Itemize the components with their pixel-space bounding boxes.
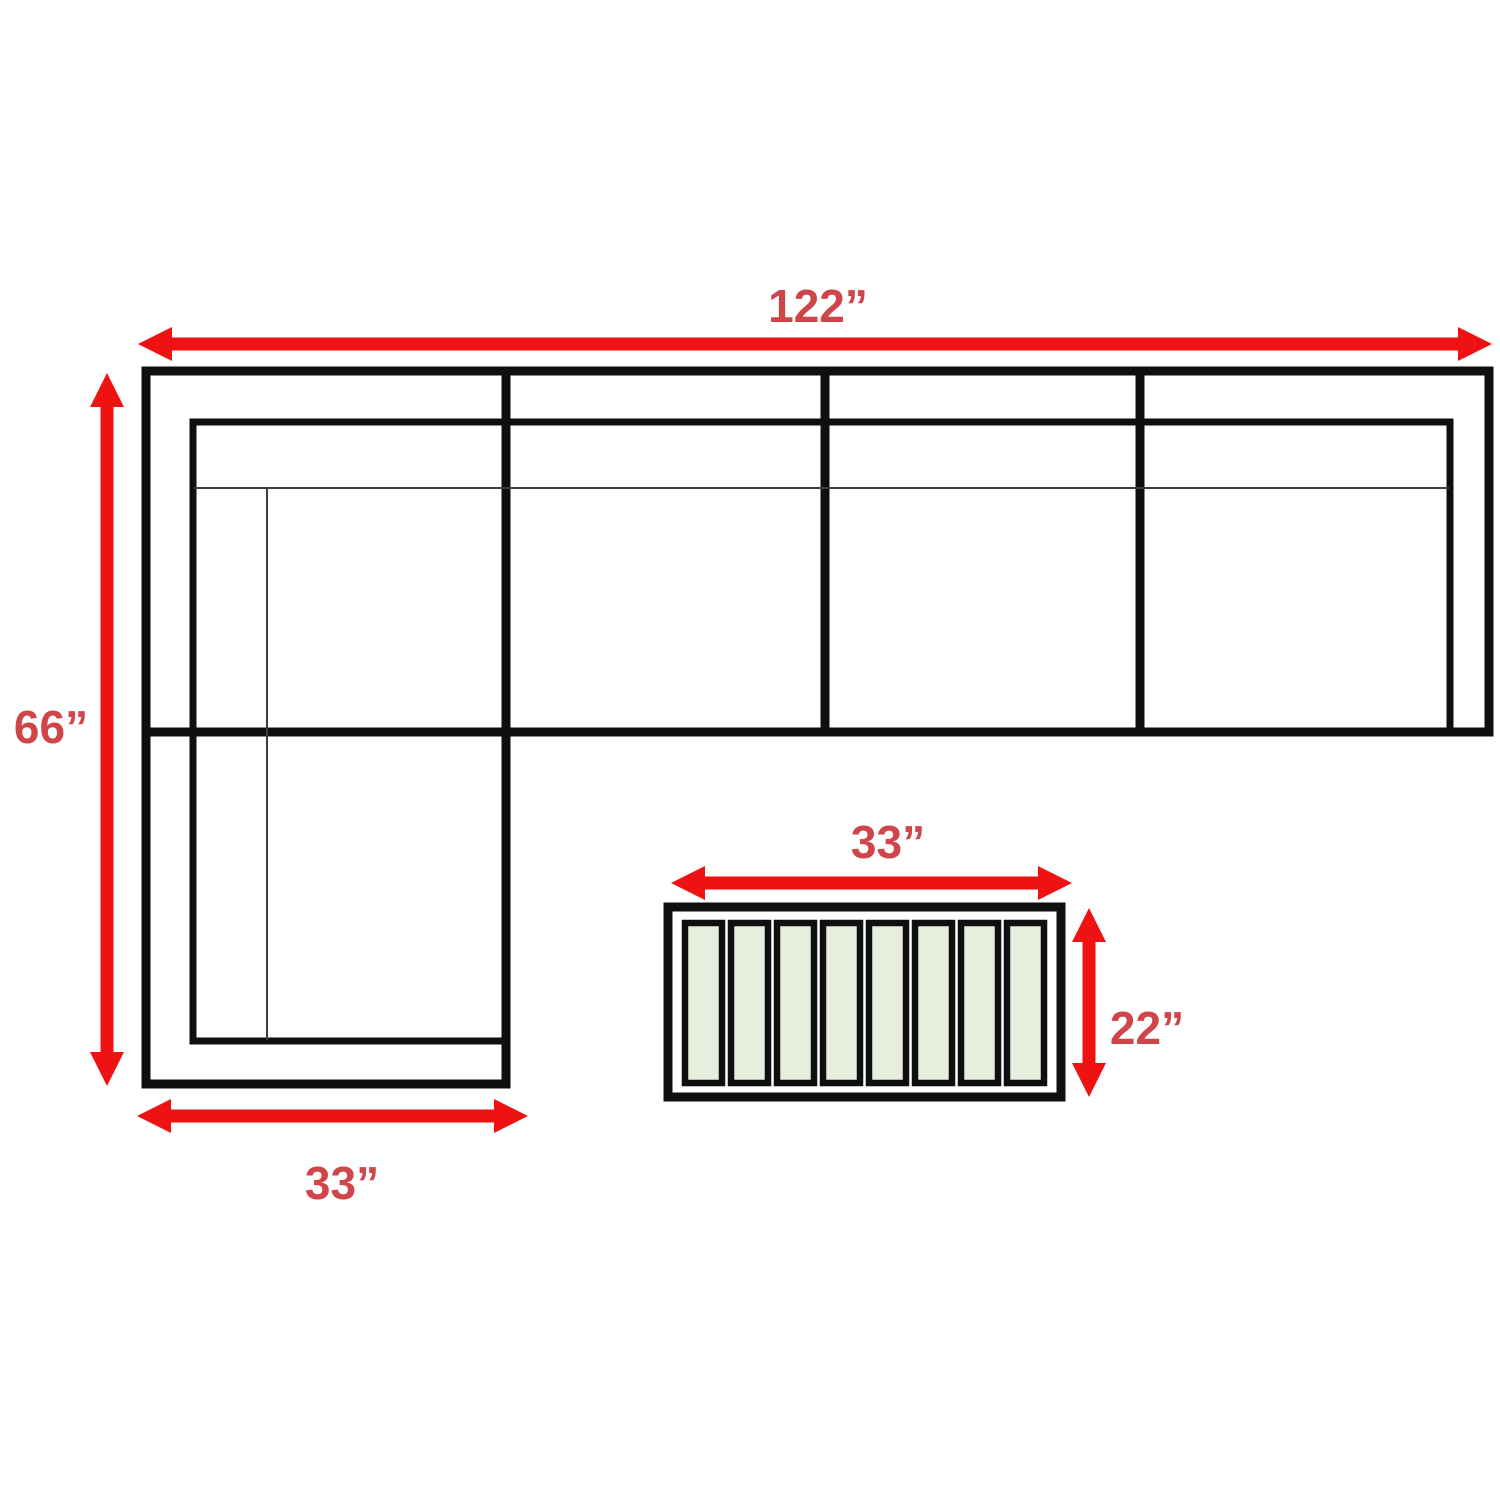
sofa-width-arrow-left-head [138, 327, 172, 361]
table-slat [731, 923, 768, 1083]
table-slat [777, 923, 814, 1083]
chaise-width-arrow-right-head [494, 1099, 528, 1133]
sofa-width-label: 122” [768, 280, 868, 332]
dimension-diagram-canvas: 122” 66” 33” 33” 22” [0, 0, 1500, 1500]
table-depth-dimension: 22” [1072, 908, 1184, 1097]
sofa-depth-label: 66” [14, 701, 88, 753]
chaise-width-dimension: 33” [137, 1099, 528, 1209]
table-slat [685, 923, 722, 1083]
table-width-label: 33” [851, 816, 925, 868]
chaise-width-arrow-left-head [137, 1099, 171, 1133]
sofa-depth-dimension: 66” [14, 373, 124, 1086]
table-depth-label: 22” [1110, 1002, 1184, 1054]
sofa-depth-arrow-top-head [90, 373, 124, 407]
sofa-dimension-diagram-page: 122” 66” 33” 33” 22” [0, 0, 1500, 1500]
table-slat [869, 923, 906, 1083]
sofa-width-arrow-right-head [1458, 327, 1492, 361]
chaise-width-label: 33” [305, 1157, 379, 1209]
sofa-width-dimension: 122” [138, 280, 1492, 361]
table-outline [668, 907, 1061, 1097]
table-slat [915, 923, 952, 1083]
table-depth-arrow-top-head [1072, 908, 1106, 942]
table-width-dimension: 33” [671, 816, 1072, 900]
table-width-arrow-right-head [1038, 866, 1072, 900]
coffee-table [668, 907, 1061, 1097]
table-slat [1007, 923, 1044, 1083]
table-slat [823, 923, 860, 1083]
table-depth-arrow-bottom-head [1072, 1063, 1106, 1097]
sofa-depth-arrow-bottom-head [90, 1052, 124, 1086]
table-slat [961, 923, 998, 1083]
table-width-arrow-left-head [671, 866, 705, 900]
